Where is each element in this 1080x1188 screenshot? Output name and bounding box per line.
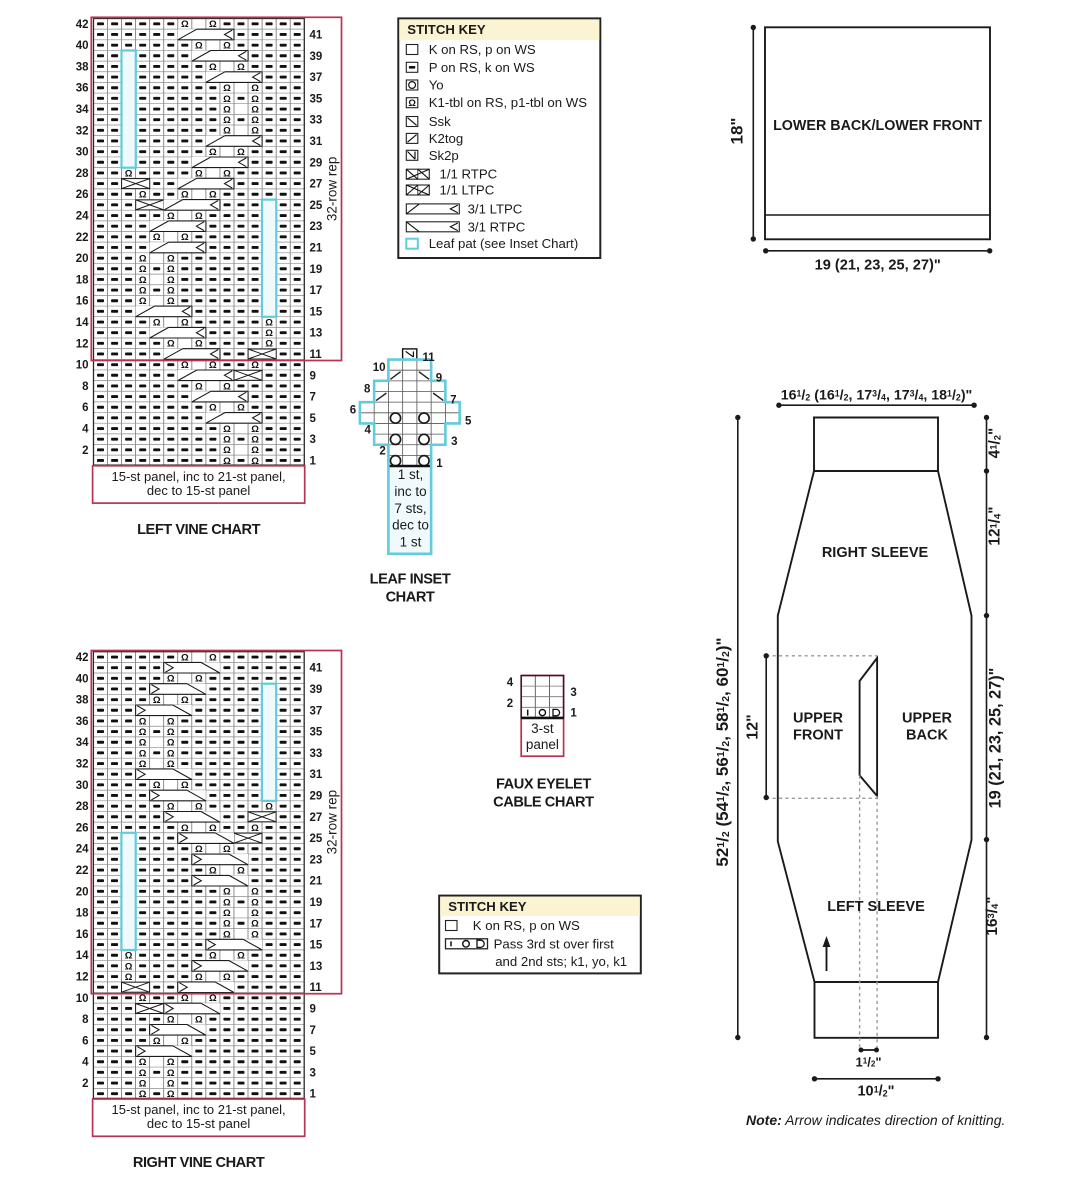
svg-text:40: 40 [76,40,89,52]
svg-text:15: 15 [310,306,323,318]
svg-text:Ω: Ω [167,211,175,222]
svg-text:Ω: Ω [181,232,189,243]
svg-text:Ω: Ω [209,62,217,73]
svg-text:7 sts,: 7 sts, [394,501,426,516]
svg-text:K on RS, p on WS: K on RS, p on WS [429,42,536,57]
svg-text:20: 20 [76,886,89,898]
svg-text:Ω: Ω [181,695,189,706]
svg-text:Ω: Ω [251,435,259,446]
svg-text:Ω: Ω [181,190,189,201]
svg-text:STITCH KEY: STITCH KEY [407,22,486,37]
svg-text:21: 21 [310,243,323,255]
svg-text:Ω: Ω [167,759,175,770]
svg-text:Ω: Ω [139,738,147,749]
svg-text:17: 17 [310,918,323,930]
svg-text:3/1 LTPC: 3/1 LTPC [468,201,523,216]
svg-text:27: 27 [310,812,323,824]
svg-text:Ω: Ω [139,264,147,275]
svg-text:Ω: Ω [125,168,133,179]
svg-text:11: 11 [423,352,436,364]
svg-text:12": 12" [745,714,762,739]
svg-text:32: 32 [76,125,89,137]
svg-text:39: 39 [310,51,323,63]
svg-text:Ω: Ω [181,993,189,1004]
svg-text:37: 37 [310,705,323,717]
svg-text:BACK: BACK [906,728,948,744]
svg-text:Ω: Ω [209,360,217,371]
svg-text:7: 7 [310,392,316,404]
svg-text:18: 18 [76,908,89,920]
svg-text:Ω: Ω [181,780,189,791]
svg-text:panel: panel [526,737,559,752]
svg-text:9: 9 [310,370,316,382]
svg-text:24: 24 [76,211,89,223]
svg-text:18": 18" [728,118,747,145]
svg-text:Ω: Ω [223,94,231,105]
svg-text:Ω: Ω [265,339,273,350]
svg-text:8: 8 [82,381,89,393]
svg-text:Ω: Ω [223,972,231,983]
svg-text:Ω: Ω [209,993,217,1004]
svg-text:161/2 (161/2, 173/4, 173/4, 18: 161/2 (161/2, 173/4, 173/4, 181/2)" [781,388,973,404]
svg-text:LEAF INSET: LEAF INSET [370,572,451,588]
svg-text:Ω: Ω [167,296,175,307]
svg-text:Ω: Ω [237,147,245,158]
svg-text:11/2": 11/2" [855,1055,881,1070]
svg-text:Ω: Ω [181,823,189,834]
svg-text:35: 35 [310,93,323,105]
svg-text:dec to 15-st panel: dec to 15-st panel [147,483,250,498]
svg-text:Ω: Ω [153,232,161,243]
svg-text:19 (21, 23, 25, 27)": 19 (21, 23, 25, 27)" [815,257,941,273]
svg-text:26: 26 [76,822,89,834]
svg-text:Ω: Ω [139,727,147,738]
svg-text:3/1 RTPC: 3/1 RTPC [468,219,526,234]
svg-text:Ω: Ω [153,695,161,706]
svg-text:16: 16 [76,929,89,941]
svg-text:Ω: Ω [223,83,231,94]
svg-text:18: 18 [76,274,89,286]
svg-text:15-st panel, inc to 21-st pane: 15-st panel, inc to 21-st panel, [112,1102,286,1117]
svg-text:Ω: Ω [139,748,147,759]
svg-text:Ω: Ω [209,147,217,158]
svg-text:Ω: Ω [195,211,203,222]
svg-text:Ω: Ω [223,381,231,392]
svg-text:LEFT SLEEVE: LEFT SLEEVE [827,899,925,915]
svg-text:Ω: Ω [223,887,231,898]
svg-text:Ω: Ω [195,844,203,855]
svg-text:Ω: Ω [237,62,245,73]
svg-text:33: 33 [310,115,323,127]
svg-text:1: 1 [570,707,577,719]
svg-text:19 (21, 23, 25, 27)": 19 (21, 23, 25, 27)" [987,668,1005,809]
svg-text:5: 5 [310,1046,317,1058]
svg-text:31: 31 [310,136,323,148]
svg-text:Ω: Ω [223,919,231,930]
svg-text:2: 2 [507,698,513,710]
svg-text:31: 31 [310,769,323,781]
svg-text:UPPER: UPPER [793,711,843,727]
svg-text:Yo: Yo [429,78,444,93]
svg-text:35: 35 [310,727,323,739]
svg-text:Ω: Ω [167,264,175,275]
svg-text:FAUX EYELET: FAUX EYELET [496,777,591,793]
svg-text:37: 37 [310,72,323,84]
svg-text:163/4": 163/4" [984,896,1001,935]
svg-text:6: 6 [82,402,88,414]
svg-text:22: 22 [76,232,89,244]
svg-text:3-st: 3-st [531,721,554,736]
svg-text:1 st: 1 st [400,535,422,550]
svg-text:Ω: Ω [167,1068,175,1079]
svg-text:Ω: Ω [139,190,147,201]
svg-text:Ω: Ω [251,929,259,940]
svg-text:Ω: Ω [167,727,175,738]
svg-text:LEFT VINE CHART: LEFT VINE CHART [137,522,261,538]
svg-text:32-row rep: 32-row rep [325,157,340,222]
svg-text:23: 23 [310,221,323,233]
svg-text:521/2 (541/2, 561/2, 581/2, 60: 521/2 (541/2, 561/2, 581/2, 601/2)" [713,637,732,866]
svg-text:UPPER: UPPER [902,711,952,727]
svg-text:Ω: Ω [251,823,259,834]
svg-text:Ω: Ω [167,286,175,297]
svg-text:29: 29 [310,791,323,803]
svg-text:Ω: Ω [209,403,217,414]
svg-text:Ω: Ω [167,738,175,749]
svg-text:28: 28 [76,168,89,180]
svg-text:Ω: Ω [251,115,259,126]
svg-text:Ω: Ω [181,19,189,30]
svg-text:Ω: Ω [167,1078,175,1089]
svg-text:8: 8 [82,1014,89,1026]
svg-text:Ω: Ω [125,961,133,972]
svg-text:14: 14 [76,950,89,962]
svg-text:Ω: Ω [209,865,217,876]
svg-text:5: 5 [310,413,317,425]
svg-text:3: 3 [570,687,576,699]
svg-text:Ω: Ω [181,317,189,328]
svg-text:27: 27 [310,179,323,191]
svg-text:23: 23 [310,854,323,866]
svg-text:Ω: Ω [209,652,217,663]
svg-text:Ω: Ω [251,424,259,435]
svg-text:6: 6 [82,1035,88,1047]
svg-text:Ω: Ω [181,1036,189,1047]
svg-text:9: 9 [310,1004,316,1016]
svg-text:25: 25 [310,200,323,212]
svg-text:14: 14 [76,317,89,329]
svg-text:Ω: Ω [251,126,259,137]
svg-text:Ω: Ω [251,887,259,898]
svg-text:Ω: Ω [167,716,175,727]
svg-text:and 2nd sts; k1, yo, k1: and 2nd sts; k1, yo, k1 [495,954,627,969]
svg-text:32-row rep: 32-row rep [325,790,340,855]
svg-text:Ω: Ω [195,41,203,52]
svg-text:Ω: Ω [223,104,231,115]
svg-text:26: 26 [76,189,89,201]
svg-text:Ω: Ω [167,748,175,759]
svg-text:Ω: Ω [223,445,231,456]
svg-text:17: 17 [310,285,323,297]
svg-text:inc to: inc to [394,484,426,499]
svg-text:41: 41 [310,663,323,675]
svg-text:2: 2 [82,1078,88,1090]
svg-text:STITCH KEY: STITCH KEY [448,899,527,914]
svg-text:6: 6 [350,404,356,416]
svg-text:29: 29 [310,157,323,169]
svg-text:Ω: Ω [223,929,231,940]
svg-text:Ω: Ω [209,19,217,30]
svg-text:dec to 15-st panel: dec to 15-st panel [147,1116,250,1131]
svg-text:3: 3 [310,434,316,446]
svg-text:Ω: Ω [139,286,147,297]
svg-text:Ω: Ω [223,435,231,446]
svg-text:7: 7 [450,395,456,407]
svg-text:Ω: Ω [195,802,203,813]
svg-text:10: 10 [76,360,89,372]
svg-text:33: 33 [310,748,323,760]
svg-text:Ω: Ω [223,168,231,179]
svg-text:15-st panel, inc to 21-st pane: 15-st panel, inc to 21-st panel, [112,469,286,484]
svg-text:Ω: Ω [223,126,231,137]
svg-text:Ω: Ω [167,275,175,286]
svg-text:13: 13 [310,961,323,973]
svg-text:1: 1 [310,456,317,468]
svg-text:K1-tbl on RS, p1-tbl on WS: K1-tbl on RS, p1-tbl on WS [429,95,588,110]
svg-text:Ω: Ω [139,993,147,1004]
svg-text:Ω: Ω [181,652,189,663]
svg-text:21: 21 [310,876,323,888]
svg-text:FRONT: FRONT [793,728,843,744]
svg-text:Ω: Ω [237,865,245,876]
svg-text:3: 3 [451,436,457,448]
svg-text:Ω: Ω [195,168,203,179]
svg-text:42: 42 [76,652,89,664]
svg-text:39: 39 [310,684,323,696]
svg-text:12: 12 [76,338,89,350]
svg-text:Ω: Ω [167,802,175,813]
svg-text:Ω: Ω [195,339,203,350]
svg-text:Ω: Ω [223,115,231,126]
svg-text:4: 4 [82,1057,89,1069]
svg-text:Ω: Ω [237,951,245,962]
svg-text:15: 15 [310,940,323,952]
svg-text:Ω: Ω [167,339,175,350]
svg-text:12: 12 [76,972,89,984]
svg-text:1/1 LTPC: 1/1 LTPC [440,183,495,198]
svg-text:Ω: Ω [125,972,133,983]
svg-text:34: 34 [76,104,89,116]
svg-text:Ω: Ω [139,1057,147,1068]
svg-text:4: 4 [507,677,514,689]
svg-text:CHART: CHART [386,590,435,606]
svg-text:41/2": 41/2" [987,428,1004,459]
svg-text:Ω: Ω [209,190,217,201]
svg-text:RIGHT VINE CHART: RIGHT VINE CHART [133,1155,265,1171]
svg-text:121/4": 121/4" [987,506,1004,545]
svg-text:Ω: Ω [125,951,133,962]
svg-text:11: 11 [310,349,323,361]
svg-text:4: 4 [364,425,371,437]
svg-text:Ω: Ω [167,1057,175,1068]
svg-text:Ω: Ω [251,360,259,371]
svg-text:Ω: Ω [251,908,259,919]
svg-text:LOWER BACK/LOWER FRONT: LOWER BACK/LOWER FRONT [773,118,982,134]
svg-text:4: 4 [82,424,89,436]
svg-text:101/2": 101/2" [857,1084,894,1100]
svg-text:9: 9 [436,373,442,385]
svg-text:34: 34 [76,737,89,749]
svg-text:32: 32 [76,759,89,771]
svg-text:Ω: Ω [195,1015,203,1026]
svg-text:Pass 3rd st over first: Pass 3rd st over first [494,936,615,951]
svg-text:Ω: Ω [265,328,273,339]
svg-text:Ω: Ω [167,1015,175,1026]
svg-text:RIGHT SLEEVE: RIGHT SLEEVE [822,545,929,561]
svg-text:Ω: Ω [251,445,259,456]
svg-text:Ω: Ω [195,674,203,685]
svg-text:7: 7 [310,1025,316,1037]
svg-text:8: 8 [364,384,371,396]
svg-text:Sk2p: Sk2p [429,148,459,163]
svg-text:10: 10 [76,993,89,1005]
svg-text:38: 38 [76,695,89,707]
svg-text:Ω: Ω [251,94,259,105]
svg-text:K2tog: K2tog [429,131,463,146]
svg-text:28: 28 [76,801,89,813]
svg-text:20: 20 [76,253,89,265]
svg-text:Ω: Ω [408,97,416,108]
svg-text:36: 36 [76,83,89,95]
svg-text:3: 3 [310,1067,316,1079]
svg-text:Ω: Ω [251,897,259,908]
svg-text:Leaf pat (see Inset Chart): Leaf pat (see Inset Chart) [429,236,579,251]
svg-text:24: 24 [76,844,89,856]
svg-text:Ω: Ω [251,104,259,115]
svg-text:Ω: Ω [153,317,161,328]
svg-text:Ω: Ω [153,1036,161,1047]
svg-text:16: 16 [76,296,89,308]
svg-text:36: 36 [76,716,89,728]
svg-text:Ω: Ω [223,908,231,919]
svg-text:Ω: Ω [139,296,147,307]
svg-text:Ω: Ω [265,802,273,813]
svg-text:Note: Arrow indicates directio: Note: Arrow indicates direction of knitt… [746,1112,1005,1128]
svg-text:11: 11 [310,982,323,994]
svg-text:Ω: Ω [237,403,245,414]
svg-text:13: 13 [310,328,323,340]
svg-text:Ω: Ω [139,1068,147,1079]
svg-text:1: 1 [436,458,443,470]
svg-text:5: 5 [465,415,472,427]
svg-text:Ω: Ω [251,83,259,94]
svg-text:38: 38 [76,61,89,73]
svg-text:Ssk: Ssk [429,114,451,129]
svg-text:Ω: Ω [167,254,175,265]
svg-text:Ω: Ω [223,897,231,908]
svg-text:41: 41 [310,30,323,42]
svg-text:K on RS, p on WS: K on RS, p on WS [473,918,580,933]
svg-text:Ω: Ω [139,254,147,265]
svg-text:40: 40 [76,673,89,685]
svg-text:Ω: Ω [223,424,231,435]
svg-text:2: 2 [379,446,385,458]
svg-text:Ω: Ω [139,716,147,727]
svg-text:Ω: Ω [209,951,217,962]
svg-text:22: 22 [76,865,89,877]
svg-text:Ω: Ω [153,780,161,791]
svg-text:Ω: Ω [195,972,203,983]
svg-text:Ω: Ω [209,823,217,834]
svg-text:Ω: Ω [139,275,147,286]
svg-text:Ω: Ω [251,919,259,930]
svg-text:1 st,: 1 st, [398,467,424,482]
svg-text:19: 19 [310,264,323,276]
svg-text:CABLE CHART: CABLE CHART [493,795,594,811]
svg-text:2: 2 [82,445,88,457]
svg-text:30: 30 [76,780,89,792]
svg-text:1: 1 [310,1089,317,1101]
svg-text:30: 30 [76,147,89,159]
svg-text:Ω: Ω [265,317,273,328]
svg-text:P on RS, k on WS: P on RS, k on WS [429,60,535,75]
svg-text:Ω: Ω [181,360,189,371]
svg-text:25: 25 [310,833,323,845]
svg-text:1/1 RTPC: 1/1 RTPC [440,167,498,182]
svg-text:Ω: Ω [139,1078,147,1089]
svg-text:Ω: Ω [167,674,175,685]
svg-text:10: 10 [373,362,386,374]
svg-text:19: 19 [310,897,323,909]
svg-text:42: 42 [76,19,89,31]
svg-text:Ω: Ω [195,381,203,392]
svg-text:Ω: Ω [223,41,231,52]
svg-text:Ω: Ω [139,759,147,770]
svg-text:Ω: Ω [223,844,231,855]
svg-text:dec to: dec to [392,518,429,533]
